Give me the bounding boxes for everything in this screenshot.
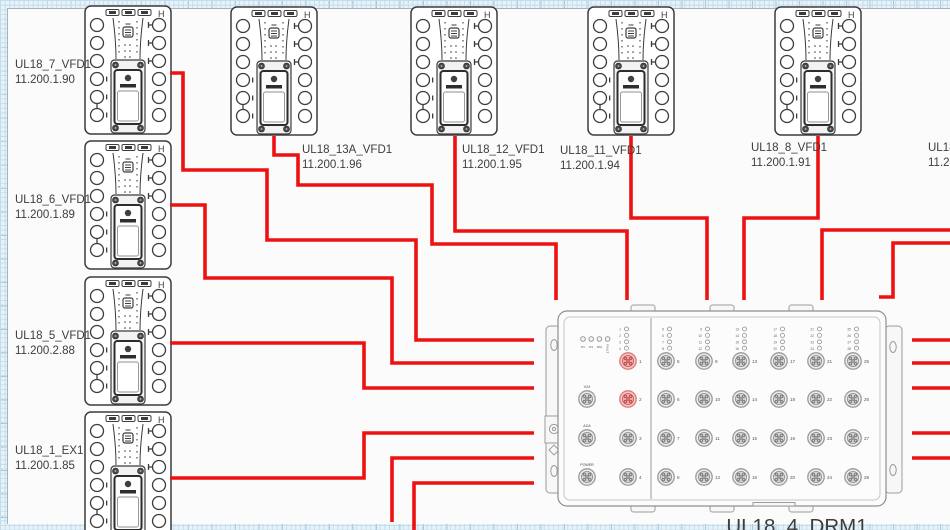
drm-aux-label: ACA bbox=[583, 424, 591, 428]
drm-port-number: 16 bbox=[752, 475, 758, 480]
drm-port-V24[interactable] bbox=[579, 391, 595, 407]
drm-led-number: 6 bbox=[662, 334, 664, 338]
drm-right-bracket bbox=[885, 326, 902, 493]
drm-led-27 bbox=[855, 340, 859, 344]
drm-led-9 bbox=[706, 327, 710, 331]
cable-ul18_5-to-drm[interactable] bbox=[170, 343, 534, 388]
drm-led-number: 24 bbox=[810, 347, 814, 351]
drm-port-number: 13 bbox=[752, 359, 758, 364]
drm-led-17 bbox=[781, 327, 785, 331]
drm-led-number: 27 bbox=[847, 340, 851, 344]
drm-led-number: 18 bbox=[773, 334, 777, 338]
drm-port-number: 28 bbox=[864, 475, 870, 480]
drm-port-number: 9 bbox=[715, 359, 718, 364]
device-UL18_13A_VFD1[interactable] bbox=[231, 7, 317, 135]
drm-led-number: 4 bbox=[619, 347, 621, 351]
drm-bottom-strip bbox=[753, 503, 795, 507]
cable-ul18_11-to-drm[interactable] bbox=[631, 136, 707, 300]
drm-led-number: 5 bbox=[662, 328, 664, 332]
drm-status-led-label: P1 bbox=[581, 345, 585, 349]
drm-aux-label: V24 bbox=[584, 385, 590, 389]
drm-led-number: 20 bbox=[773, 347, 777, 351]
drm-led-number: 8 bbox=[662, 347, 664, 351]
drm-led-5 bbox=[668, 327, 672, 331]
drm-led-1 bbox=[625, 327, 629, 331]
drm-led-20 bbox=[781, 346, 785, 350]
drm-led-14 bbox=[743, 333, 747, 337]
drm-led-22 bbox=[818, 333, 822, 337]
drm-led-number: 11 bbox=[699, 340, 703, 344]
drm-led-12 bbox=[706, 346, 710, 350]
drm-led-number: 16 bbox=[735, 347, 739, 351]
drm-port-number: 6 bbox=[677, 397, 680, 402]
drm-port-number: 20 bbox=[790, 475, 796, 480]
drm-port-number: 5 bbox=[677, 359, 680, 364]
drm-status-led-label: FAULT bbox=[606, 344, 610, 354]
drm-port-number: 14 bbox=[752, 397, 758, 402]
device-UL18_12_VFD1[interactable] bbox=[411, 7, 497, 135]
drm-led-number: 7 bbox=[662, 340, 664, 344]
drm-led-number: 14 bbox=[735, 334, 739, 338]
drm-led-2 bbox=[625, 333, 629, 337]
drm-port-POWER[interactable] bbox=[579, 469, 595, 485]
drm-port-number: 11 bbox=[715, 436, 720, 441]
drm-status-led-RM bbox=[597, 337, 602, 342]
drm-led-number: 9 bbox=[700, 328, 702, 332]
drm-led-number: 12 bbox=[698, 347, 702, 351]
drm-led-13 bbox=[743, 327, 747, 331]
drm-status-led-P2 bbox=[589, 337, 594, 342]
drm-status-led-P1 bbox=[581, 337, 586, 342]
diagram-scene: H bbox=[0, 0, 950, 530]
device-UL18_5_VFD1[interactable] bbox=[85, 277, 171, 405]
drm-port-number: 22 bbox=[827, 397, 833, 402]
cable-right-to-drm-top-1[interactable] bbox=[822, 230, 950, 300]
drm-led-28 bbox=[855, 346, 859, 350]
drm-led-4 bbox=[625, 346, 629, 350]
drm-port-number: 26 bbox=[864, 397, 870, 402]
drm-led-number: 13 bbox=[735, 328, 739, 332]
device-UL18_8_VFD1[interactable] bbox=[775, 7, 861, 135]
drm-led-25 bbox=[855, 327, 859, 331]
drm-port-number: 25 bbox=[864, 359, 870, 364]
diagram-canvas: H bbox=[0, 0, 950, 530]
drm-led-19 bbox=[781, 340, 785, 344]
drm-led-number: 19 bbox=[773, 340, 777, 344]
drm-led-26 bbox=[855, 333, 859, 337]
drm-led-number: 10 bbox=[698, 334, 702, 338]
drm-led-10 bbox=[706, 333, 710, 337]
drm-port-number: 18 bbox=[790, 397, 796, 402]
drm-led-number: 21 bbox=[810, 328, 814, 332]
drm-port-number: 1 bbox=[639, 359, 642, 364]
cable-drm-to-bottom-2[interactable] bbox=[414, 483, 534, 530]
drm-status-led-label: P2 bbox=[589, 345, 593, 349]
drm-led-18 bbox=[781, 333, 785, 337]
device-UL18_7_VFD1[interactable] bbox=[85, 6, 171, 134]
drm-led-6 bbox=[668, 333, 672, 337]
drm-led-number: 25 bbox=[847, 328, 851, 332]
drm-port-number: 15 bbox=[752, 436, 758, 441]
drm-led-23 bbox=[818, 340, 822, 344]
drm-port-number: 3 bbox=[639, 436, 642, 441]
cable-ul18_8-to-drm[interactable] bbox=[744, 136, 818, 300]
drm-led-number: 1 bbox=[619, 328, 621, 332]
drm-port-number: 8 bbox=[677, 475, 680, 480]
cable-ul18_1-to-drm[interactable] bbox=[170, 433, 534, 478]
drm-led-11 bbox=[706, 340, 710, 344]
drm-led-3 bbox=[625, 340, 629, 344]
drm-port-number: 19 bbox=[790, 436, 796, 441]
drm-led-number: 23 bbox=[810, 340, 814, 344]
drm-port-number: 21 bbox=[827, 359, 833, 364]
drm-port-number: 10 bbox=[715, 397, 721, 402]
drm-port-number: 27 bbox=[864, 436, 870, 441]
drm-port-ACA[interactable] bbox=[579, 430, 595, 446]
drm-led-16 bbox=[743, 346, 747, 350]
drm-led-21 bbox=[818, 327, 822, 331]
device-UL18_6_VFD1[interactable] bbox=[85, 141, 171, 269]
drm-led-number: 2 bbox=[619, 334, 621, 338]
drm-led-number: 28 bbox=[847, 347, 851, 351]
drm-led-number: 26 bbox=[847, 334, 851, 338]
device-UL18_1_EX1[interactable] bbox=[85, 412, 171, 530]
drm-led-number: 17 bbox=[773, 328, 777, 332]
drm-aux-label: POWER bbox=[580, 463, 594, 467]
drm-port-number: 12 bbox=[715, 475, 721, 480]
device-UL18_11_VFD1[interactable] bbox=[588, 7, 674, 135]
drm-port-number: 2 bbox=[639, 397, 642, 402]
drm-port-number: 23 bbox=[827, 436, 833, 441]
drm-status-led-label: RM bbox=[597, 345, 602, 349]
drm-led-7 bbox=[668, 340, 672, 344]
drm-status-led-FAULT bbox=[605, 337, 610, 342]
drm-led-8 bbox=[668, 346, 672, 350]
drm-led-number: 3 bbox=[619, 340, 621, 344]
drm-led-15 bbox=[743, 340, 747, 344]
drm-port-number: 4 bbox=[639, 475, 642, 480]
drm-port-number: 7 bbox=[677, 436, 680, 441]
drm-led-number: 22 bbox=[810, 334, 814, 338]
cable-right-to-drm-top-2[interactable] bbox=[879, 243, 950, 297]
drm-led-24 bbox=[818, 346, 822, 350]
drm-port-number: 17 bbox=[790, 359, 796, 364]
cable-ul18_12-to-drm[interactable] bbox=[455, 136, 627, 300]
drm-port-number: 24 bbox=[827, 475, 833, 480]
drm-led-number: 15 bbox=[735, 340, 739, 344]
